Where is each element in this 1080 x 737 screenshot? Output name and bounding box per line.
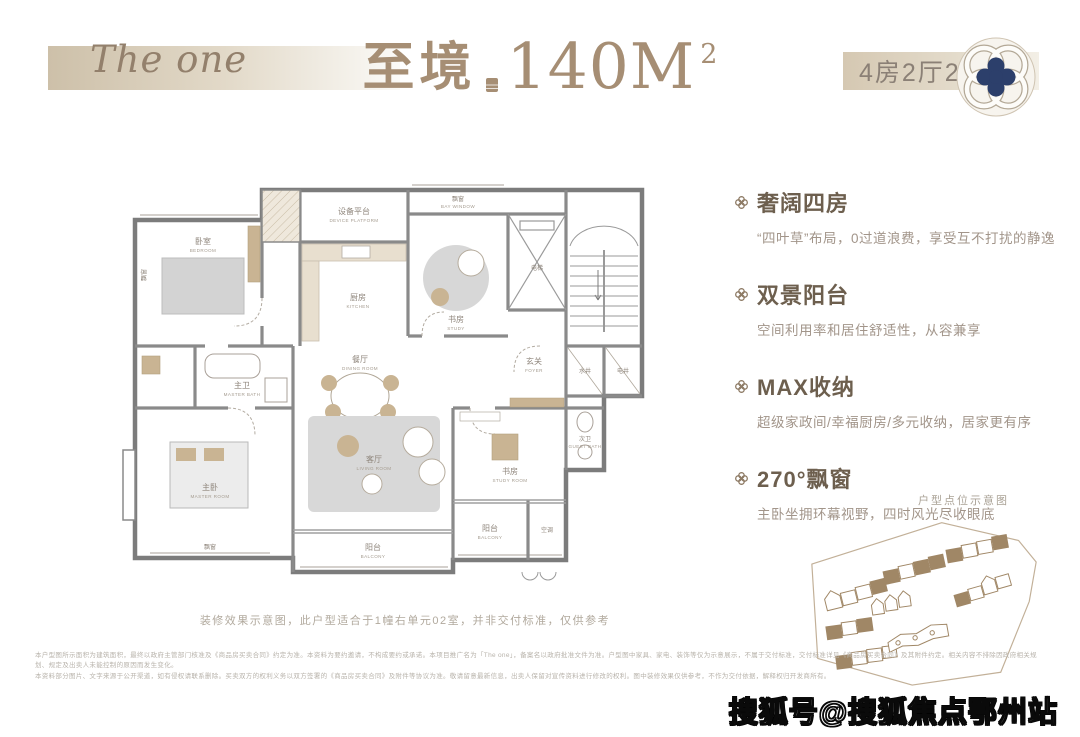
svg-text:LIVING ROOM: LIVING ROOM [356,466,391,471]
clover-bullet-icon [735,380,748,393]
study-room-desk [460,412,500,421]
clover-bullet-icon [735,196,748,209]
cabinet [142,356,160,374]
room-label-kitchen: 厨房 [350,292,366,302]
title-square-sup: 2 [700,39,717,70]
svg-text:MASTER BATH: MASTER BATH [224,392,261,397]
title-seal [486,78,498,92]
site-buildings [823,535,1013,670]
room-label-master-bath: 主卫 [234,380,250,390]
room-label-ac: 空调 [541,526,553,534]
room-label-bedroom: 卧室 [195,236,211,246]
room-label-elec-shaft: 电井 [617,367,629,375]
room-label-balcony-living: 阳台 [365,542,381,552]
room-label-dining: 餐厅 [352,355,368,364]
study-room-ottoman [492,434,518,460]
title-area-number: 140M [507,34,696,100]
plan-note: 装修效果示意图，此户型适合于1幢右单元02室，并非交付标准，仅供参考 [110,612,700,628]
room-label-guest-bath: 次卫 [579,435,591,443]
floor-plan: 设备平台 DEVICE PLATFORM 飘窗 BAY WINDOW 卧室 BE… [110,150,700,630]
room-label-balcony-study: 阳台 [482,523,498,533]
disclaimer: 本户型图所示面积为建筑面积，最终以政府主管部门核准及《商品房买卖合同》约定为准。… [35,651,1047,683]
kitchen-sink [342,246,370,258]
title-chinese: 至境 [363,36,477,100]
svg-text:DEVICE PLATFORM: DEVICE PLATFORM [329,218,378,223]
svg-text:FOYER: FOYER [525,368,543,373]
feature-title: 270°飘窗 [757,462,853,494]
feature-desc: “四叶草”布局，0过道浪费，享受互不打扰的静逸 [735,227,1055,247]
svg-text:BAY WINDOW: BAY WINDOW [441,204,475,209]
master-pillow-1 [176,448,196,461]
sofa-1 [403,427,433,457]
svg-text:DINING ROOM: DINING ROOM [342,366,378,371]
room-label-bay-window-master: 飘窗 [204,543,216,551]
watermark-text: 搜狐号@搜狐焦点鄂州站 [729,689,1058,731]
utility-hatch-area [262,190,300,242]
floor-plan-svg: 设备平台 DEVICE PLATFORM 飘窗 BAY WINDOW 卧室 BE… [110,150,700,630]
svg-text:BALCONY: BALCONY [361,554,386,559]
kitchen-counter-side [302,261,319,341]
feature-desc: 空间利用率和居住舒适性，从容兼享 [735,319,1055,339]
svg-text:STUDY: STUDY [447,326,465,331]
feature-item: 双景阳台 空间利用率和居住舒适性，从容兼享 [735,278,1055,339]
study-pouf [431,288,449,306]
feature-desc: 超级家政间/幸福厨房/多元收纳，居家更有序 [735,411,1055,431]
svg-text:BEDROOM: BEDROOM [190,248,217,253]
room-label-study-room: 书房 [502,466,518,476]
svg-text:KITCHEN: KITCHEN [347,304,370,309]
disclaimer-line-2: 本资料部分图片、文字来源于公开渠道，如有侵权请联系删除。买卖双方的权利义务以双方… [35,672,1047,682]
svg-text:STUDY ROOM: STUDY ROOM [492,478,527,483]
clover-knot-emblem-icon [954,35,1038,119]
feature-title: 双景阳台 [757,278,849,310]
master-pillow-2 [204,448,224,461]
sofa-2 [419,459,445,485]
room-label-bay-window-study: 飘窗 [452,195,464,203]
room-label-water-shaft: 水井 [579,367,591,375]
bathtub [205,354,260,378]
bedroom-bed [162,258,244,314]
clover-bullet-icon [735,472,748,485]
svg-text:GUEST BATH: GUEST BATH [569,444,602,449]
master-bay-window-bump [123,450,135,520]
disclaimer-line-1: 本户型图所示面积为建筑面积，最终以政府主管部门核准及《商品房买卖合同》约定为准。… [35,651,1047,671]
room-label-study: 书房 [448,314,464,324]
feature-item: 奢阔四房 “四叶草”布局，0过道浪费，享受互不打扰的静逸 [735,186,1055,247]
foyer-cabinet [510,398,564,407]
feature-title: 奢阔四房 [757,186,849,218]
room-label-elevator: 电梯 [531,264,543,272]
room-label-living-room: 客厅 [366,454,382,464]
room-label-master-bedroom: 主卧 [202,482,218,492]
toilet [577,412,593,432]
study-lounge-chair [458,250,484,276]
room-label-bay-window-left: 飘窗 [140,269,148,281]
clover-bullet-icon [735,288,748,301]
svg-text:BALCONY: BALCONY [478,535,503,540]
bedroom-wardrobe [248,226,260,282]
ac-unit-outline [522,572,556,580]
coffee-table [362,474,382,494]
svg-text:MASTER ROOM: MASTER ROOM [190,494,229,499]
room-label-device-platform: 设备平台 [338,206,370,216]
room-label-foyer: 玄关 [526,356,542,366]
armchair [337,435,359,457]
feature-item: MAX收纳 超级家政间/幸福厨房/多元收纳，居家更有序 [735,370,1055,431]
feature-title: MAX收纳 [757,370,855,402]
